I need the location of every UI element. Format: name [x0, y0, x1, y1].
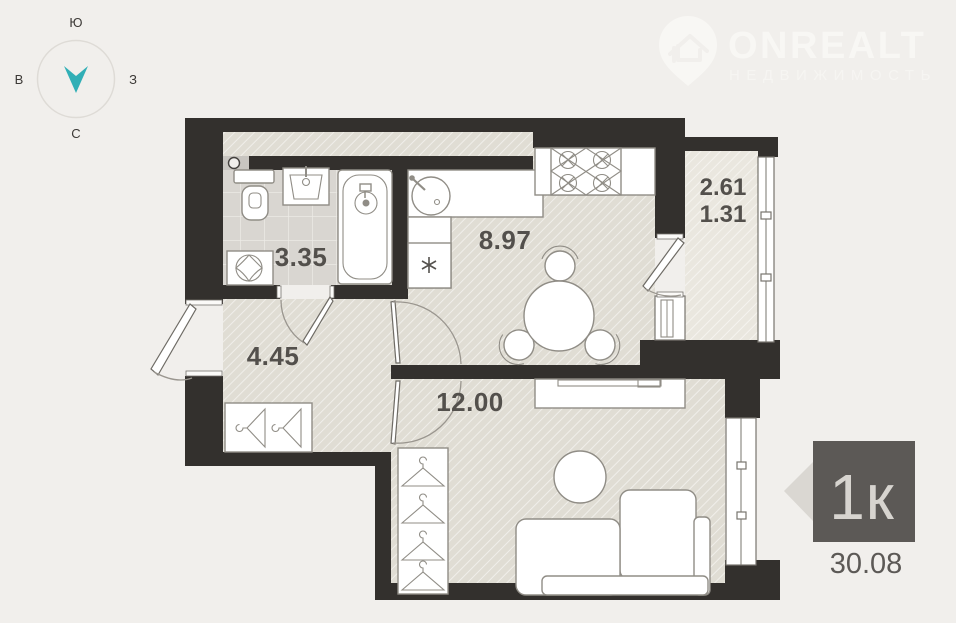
wall-segment: [640, 340, 780, 379]
wall-segment: [331, 285, 408, 299]
hallway-area-label: 4.45: [247, 341, 300, 371]
kitchen-area-label: 8.97: [479, 225, 532, 255]
wardrobe-icon: [398, 448, 448, 594]
balcony-window-icon: [758, 157, 774, 342]
wall-segment: [725, 560, 780, 600]
watermark-brand: ONREALT: [728, 25, 926, 67]
room-count-label: 1к: [829, 461, 895, 533]
wall-segment: [725, 379, 760, 418]
wall-segment: [185, 118, 535, 132]
wall-segment: [533, 118, 655, 148]
stove-icon: [551, 148, 621, 195]
living-room-window-icon: [726, 418, 756, 565]
wall-segment: [685, 137, 765, 151]
washing-machine-icon: [227, 251, 273, 285]
tv-icon: [535, 379, 685, 408]
bathroom-area-label: 3.35: [275, 242, 328, 272]
pouf-icon: [554, 451, 606, 503]
wall-segment: [185, 118, 223, 304]
radiator-icon: [655, 296, 685, 340]
wall-segment: [223, 285, 280, 299]
wall-segment: [655, 118, 685, 238]
floorplan-svg: ONREALT НЕДВИЖИМОСТЬ Ю В З С: [0, 0, 956, 623]
wardrobe-icon: [225, 403, 312, 452]
fridge-icon: [408, 243, 451, 288]
wall-segment: [375, 452, 391, 600]
wall-segment: [223, 156, 533, 170]
wall-segment: [758, 137, 778, 157]
bathroom-sink-icon: [283, 166, 329, 205]
vent-icon: [223, 156, 249, 170]
living-room-area-label: 12.00: [436, 387, 504, 417]
bathtub-icon: [338, 170, 392, 284]
wall-segment: [391, 365, 655, 379]
total-area-label: 30.08: [830, 548, 903, 580]
balcony-area-total-label: 2.61: [700, 174, 747, 201]
watermark-tagline: НЕДВИЖИМОСТЬ: [729, 67, 937, 84]
compass-bottom-label: С: [71, 126, 80, 141]
vent-shaft: [223, 132, 533, 156]
compass-right-label: З: [129, 72, 137, 87]
balcony-area-counted-label: 1.31: [700, 201, 747, 228]
floorplan-page: ONREALT НЕДВИЖИМОСТЬ Ю В З С: [0, 0, 956, 623]
compass-left-label: В: [15, 72, 24, 87]
wall-segment: [392, 156, 408, 299]
compass-top-label: Ю: [69, 15, 82, 30]
wall-segment: [185, 452, 391, 466]
hallway-furniture: [225, 403, 312, 452]
